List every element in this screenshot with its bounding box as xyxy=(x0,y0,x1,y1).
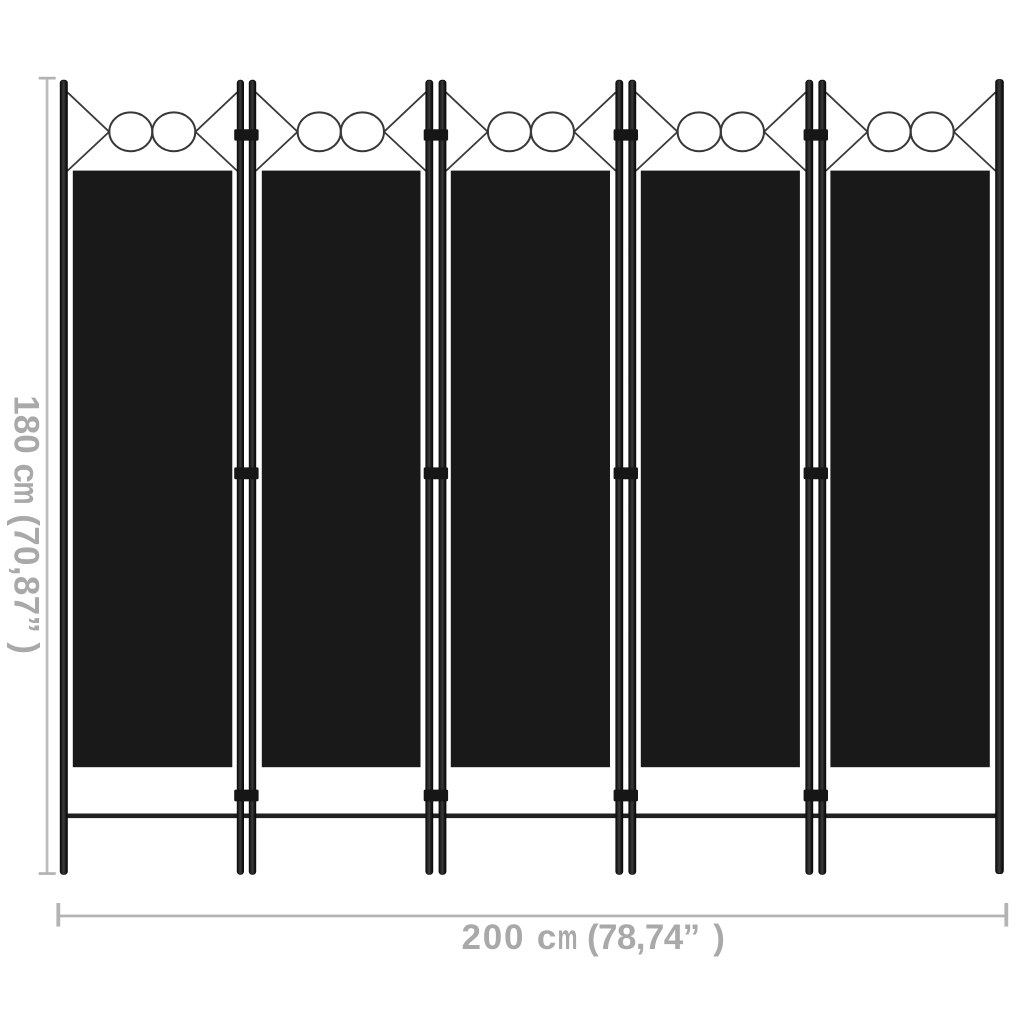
svg-text:m: m xyxy=(558,918,578,957)
svg-text:(70,87”: (70,87” xyxy=(7,514,46,633)
svg-text:180 c: 180 c xyxy=(7,395,46,483)
svg-text:200 c: 200 c xyxy=(462,918,559,957)
svg-text:): ) xyxy=(7,642,46,654)
svg-text:(78,74”: (78,74” xyxy=(587,918,700,957)
svg-text:): ) xyxy=(713,918,725,957)
svg-text:m: m xyxy=(7,482,46,505)
